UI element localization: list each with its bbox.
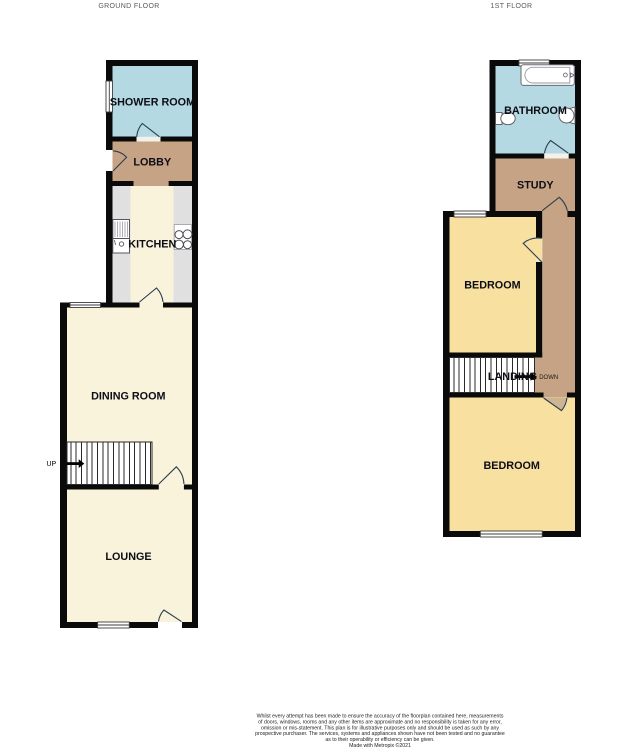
svg-text:1ST FLOOR: 1ST FLOOR xyxy=(491,3,533,10)
svg-text:GROUND FLOOR: GROUND FLOOR xyxy=(98,3,159,10)
svg-text:KITCHEN: KITCHEN xyxy=(128,239,176,251)
svg-text:DINING ROOM: DINING ROOM xyxy=(91,391,165,403)
svg-text:DOWN: DOWN xyxy=(539,375,558,381)
svg-text:UP: UP xyxy=(47,461,57,468)
svg-text:STUDY: STUDY xyxy=(517,180,554,192)
svg-text:LOUNGE: LOUNGE xyxy=(105,551,151,563)
svg-text:BATHROOM: BATHROOM xyxy=(504,105,567,117)
svg-text:BEDROOM: BEDROOM xyxy=(464,280,520,292)
svg-text:SHOWER ROOM: SHOWER ROOM xyxy=(110,97,195,109)
svg-text:LANDING: LANDING xyxy=(488,371,537,383)
svg-text:Made with Metropix ©2021: Made with Metropix ©2021 xyxy=(349,742,411,749)
svg-text:BEDROOM: BEDROOM xyxy=(484,460,540,472)
svg-text:LOBBY: LOBBY xyxy=(133,157,172,169)
